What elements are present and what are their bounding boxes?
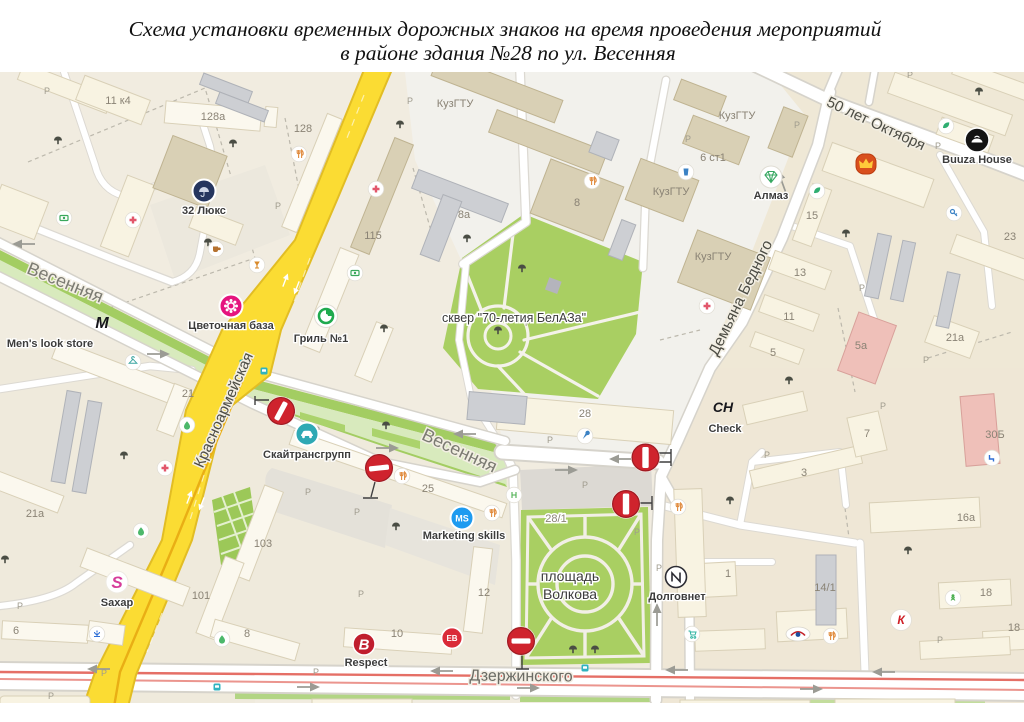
svg-text:P: P [354, 507, 360, 517]
svg-text:Волкова: Волкова [543, 586, 597, 602]
svg-text:B: B [359, 637, 370, 654]
svg-text:Долговнет: Долговнет [648, 591, 706, 603]
svg-text:Цветочная база: Цветочная база [188, 320, 274, 332]
svg-text:28/1: 28/1 [545, 513, 566, 525]
svg-text:Respect: Respect [345, 657, 388, 669]
svg-text:18: 18 [980, 587, 992, 599]
svg-text:12: 12 [478, 587, 490, 599]
svg-text:P: P [656, 563, 662, 573]
svg-text:P: P [17, 601, 23, 611]
svg-text:Скайтрансгрупп: Скайтрансгрупп [263, 449, 351, 461]
svg-text:10: 10 [391, 628, 403, 640]
svg-text:MS: MS [455, 514, 469, 524]
svg-text:КузГТУ: КузГТУ [695, 251, 733, 263]
svg-text:8: 8 [244, 628, 250, 640]
svg-text:18: 18 [1008, 622, 1020, 634]
svg-text:101: 101 [192, 590, 210, 602]
svg-text:M: M [95, 315, 109, 332]
svg-text:P: P [275, 201, 281, 211]
svg-text:P: P [358, 589, 364, 599]
svg-text:7: 7 [864, 428, 870, 440]
svg-text:Marketing skills: Marketing skills [423, 530, 506, 542]
svg-text:25: 25 [422, 483, 434, 495]
svg-text:30Б: 30Б [985, 429, 1004, 441]
svg-text:КузГТУ: КузГТУ [719, 110, 757, 122]
svg-text:P: P [764, 450, 770, 460]
svg-text:CH: CH [713, 399, 734, 415]
svg-text:КузГТУ: КузГТУ [653, 186, 691, 198]
svg-text:115: 115 [364, 230, 382, 242]
svg-text:11: 11 [783, 311, 794, 323]
svg-text:1: 1 [725, 568, 731, 580]
svg-text:площадь: площадь [541, 568, 599, 584]
svg-text:S: S [111, 573, 123, 592]
svg-text:8: 8 [574, 197, 580, 209]
svg-text:P: P [582, 480, 588, 490]
svg-text:8а: 8а [458, 209, 471, 221]
svg-text:P: P [935, 141, 941, 151]
svg-text:Check: Check [708, 423, 742, 435]
svg-text:23: 23 [1004, 231, 1016, 243]
svg-text:3: 3 [801, 467, 807, 479]
svg-text:Men's look store: Men's look store [7, 338, 93, 350]
svg-text:128: 128 [294, 123, 312, 135]
svg-text:P: P [407, 96, 413, 106]
svg-text:Схема установки временных доро: Схема установки временных дорожных знако… [129, 17, 882, 41]
svg-text:P: P [313, 667, 319, 677]
svg-text:Buuza House: Buuza House [942, 154, 1012, 166]
svg-text:Дзержинского: Дзержинского [469, 668, 573, 686]
svg-text:P: P [937, 635, 943, 645]
svg-text:P: P [48, 691, 54, 701]
svg-text:ЕВ: ЕВ [446, 634, 457, 643]
svg-text:P: P [44, 86, 50, 96]
svg-text:6 ст1: 6 ст1 [700, 152, 726, 164]
svg-text:15: 15 [806, 210, 818, 222]
svg-text:P: P [859, 283, 865, 293]
svg-text:Saxap: Saxap [101, 597, 134, 609]
svg-text:P: P [923, 355, 929, 365]
svg-text:Алмаз: Алмаз [754, 190, 789, 202]
svg-text:21а: 21а [26, 508, 45, 520]
svg-text:P: P [547, 435, 553, 445]
svg-text:сквер "70-летия БелАЗа": сквер "70-летия БелАЗа" [442, 311, 586, 325]
svg-text:6: 6 [13, 625, 19, 637]
svg-text:28: 28 [579, 408, 591, 420]
svg-text:16а: 16а [957, 512, 976, 524]
svg-text:14/1: 14/1 [814, 582, 835, 594]
svg-text:P: P [634, 527, 640, 537]
svg-text:103: 103 [254, 538, 272, 550]
svg-text:в районе здания №28 по ул. Вес: в районе здания №28 по ул. Весенняя [340, 41, 675, 65]
svg-text:13: 13 [794, 267, 806, 279]
svg-text:P: P [101, 668, 107, 678]
svg-text:P: P [880, 401, 886, 411]
svg-text:P: P [305, 487, 311, 497]
svg-text:32 Люкс: 32 Люкс [182, 205, 226, 217]
svg-text:21: 21 [182, 388, 194, 400]
svg-text:P: P [685, 134, 691, 144]
svg-text:5: 5 [770, 347, 776, 359]
svg-text:21а: 21а [946, 332, 965, 344]
svg-text:11 к4: 11 к4 [105, 95, 130, 107]
svg-text:P: P [794, 120, 800, 130]
svg-text:128а: 128а [201, 111, 226, 123]
svg-text:КузГТУ: КузГТУ [437, 98, 475, 110]
svg-text:5а: 5а [855, 340, 868, 352]
svg-text:Гриль №1: Гриль №1 [294, 333, 348, 345]
